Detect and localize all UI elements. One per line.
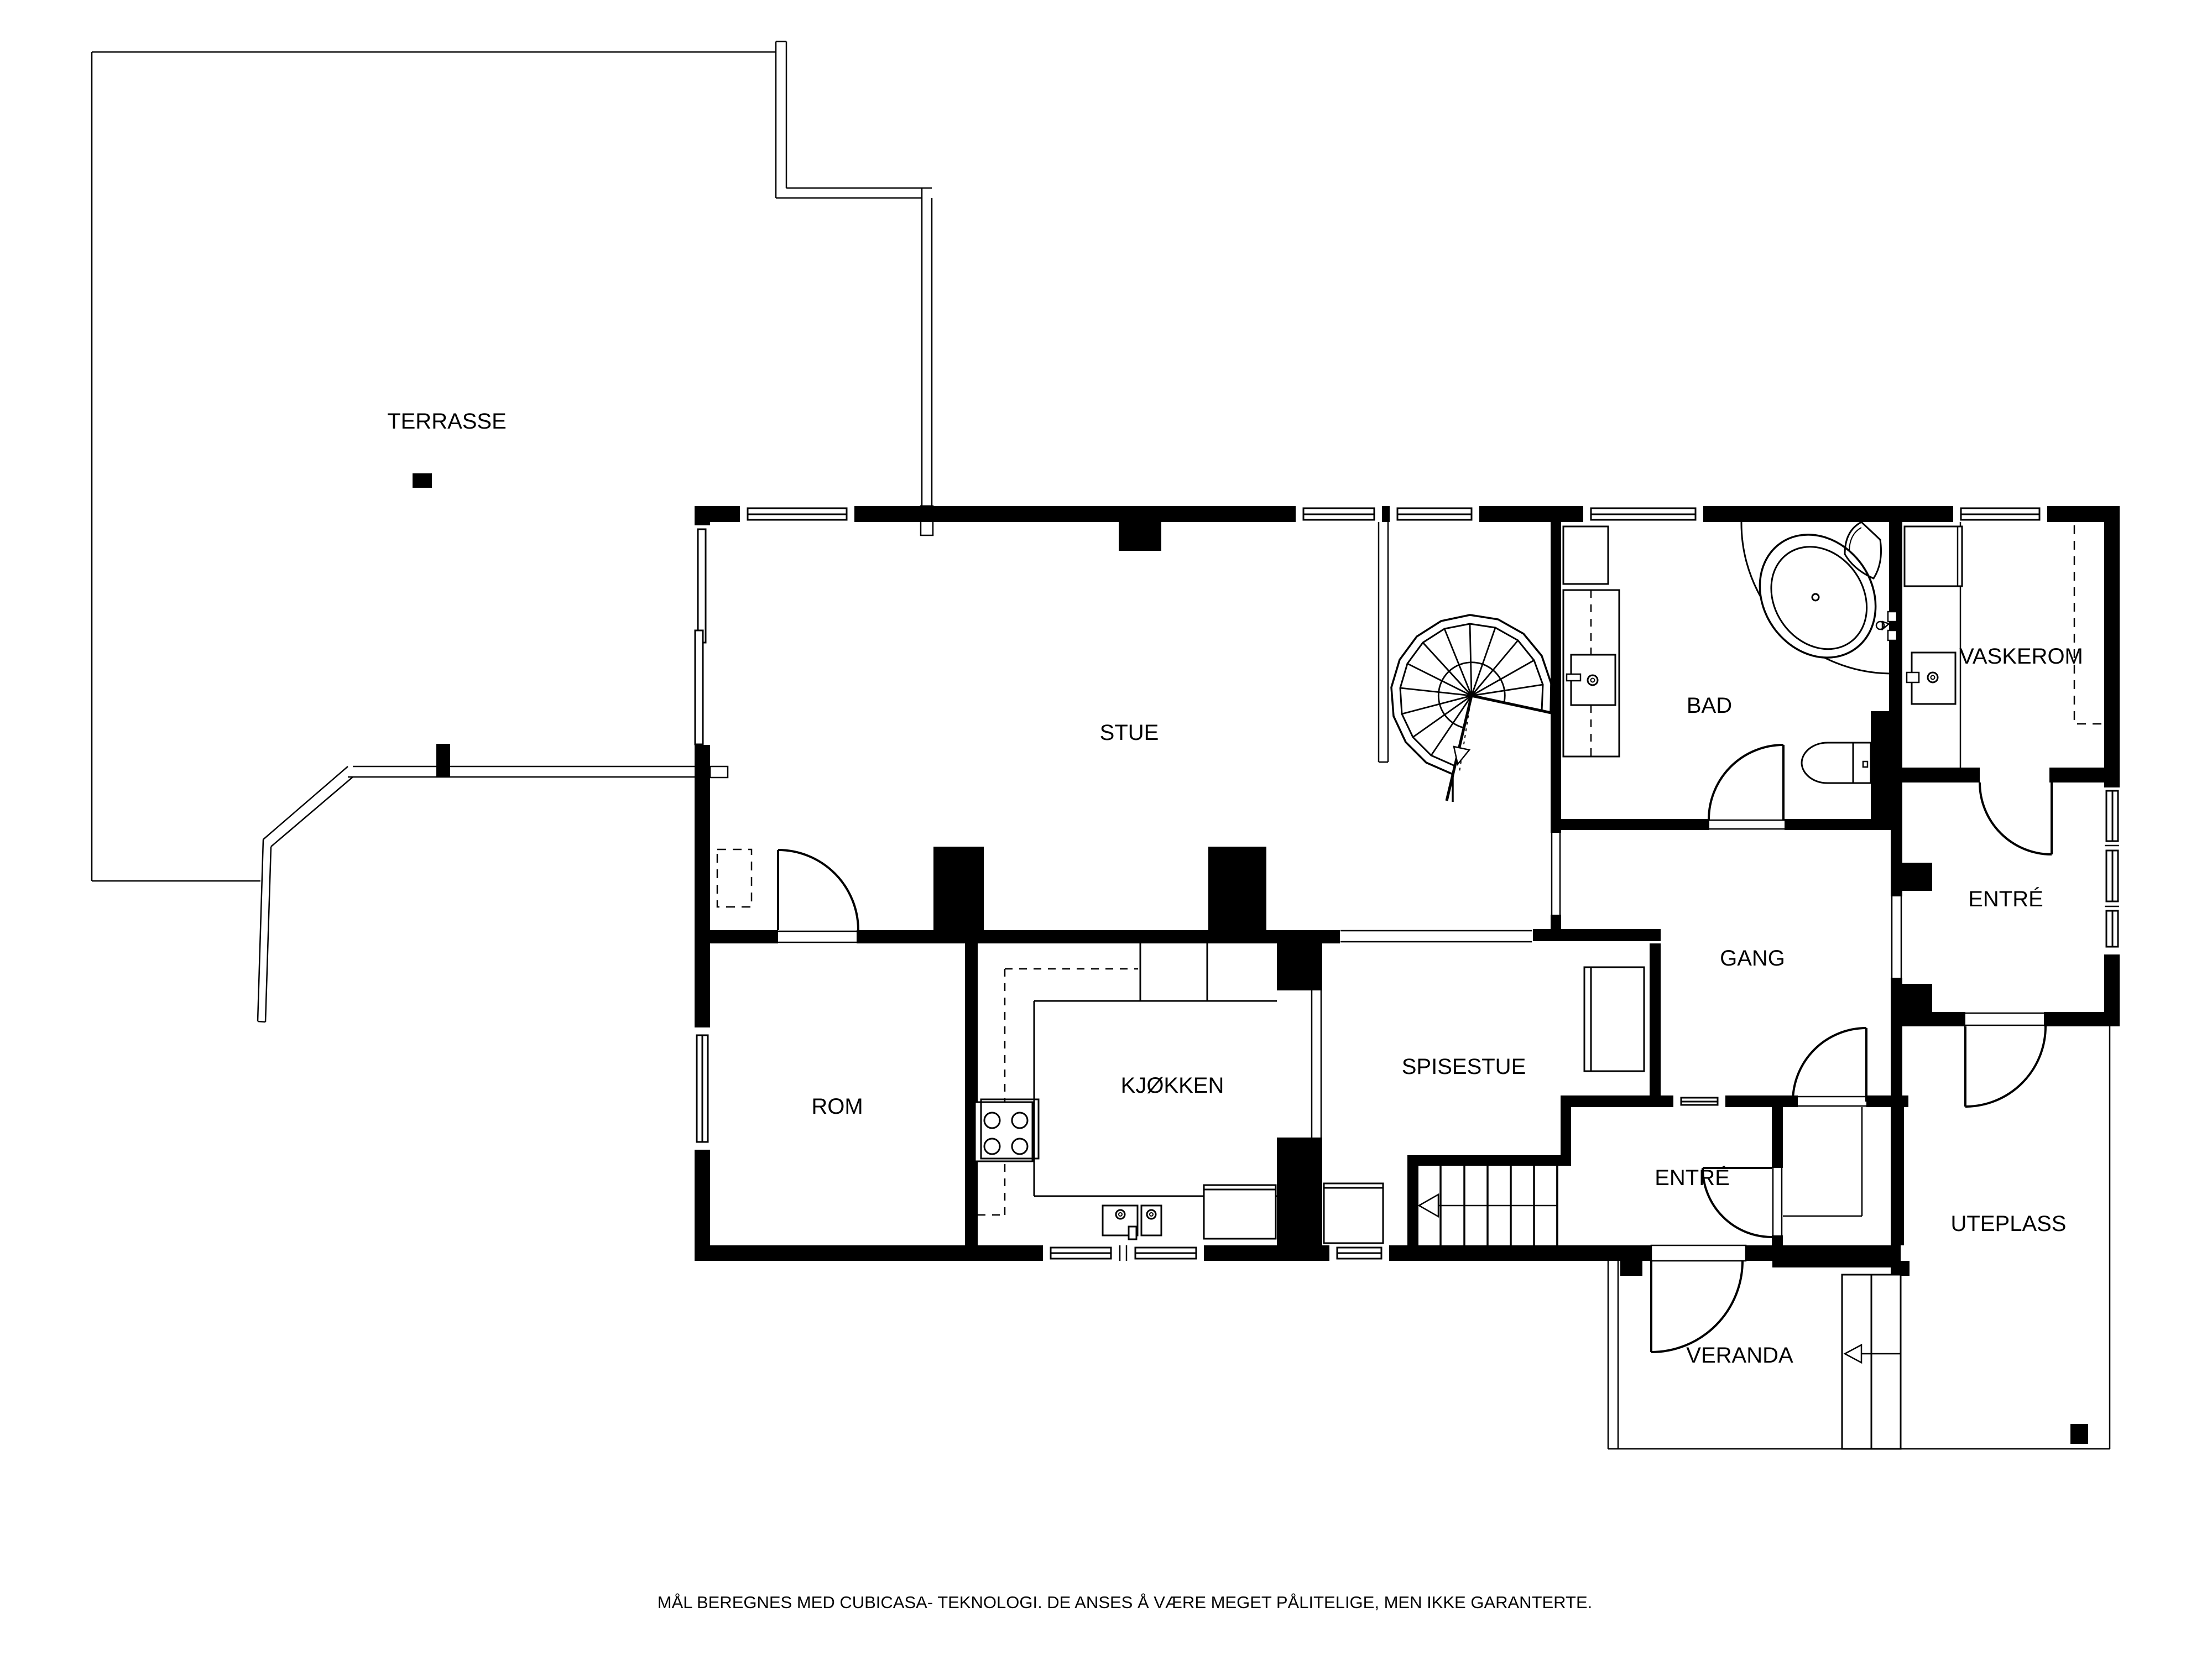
svg-text:KJØKKEN: KJØKKEN	[1121, 1073, 1224, 1098]
svg-text:SPISESTUE: SPISESTUE	[1402, 1055, 1526, 1079]
svg-text:UTEPLASS: UTEPLASS	[1951, 1212, 2067, 1236]
svg-text:TERRASSE: TERRASSE	[387, 409, 507, 434]
svg-text:ENTRÉ: ENTRÉ	[1655, 1165, 1730, 1190]
svg-text:VERANDA: VERANDA	[1686, 1343, 1793, 1368]
svg-text:VASKEROM: VASKEROM	[1959, 644, 2083, 669]
svg-text:MÅL BEREGNES MED CUBICASA- TEK: MÅL BEREGNES MED CUBICASA- TEKNOLOGI. DE…	[658, 1593, 1592, 1612]
svg-text:GANG: GANG	[1720, 946, 1785, 971]
svg-text:STUE: STUE	[1100, 721, 1159, 745]
svg-text:ROM: ROM	[811, 1094, 863, 1119]
svg-text:BAD: BAD	[1687, 693, 1732, 718]
svg-text:ENTRÉ: ENTRÉ	[1968, 886, 2043, 911]
